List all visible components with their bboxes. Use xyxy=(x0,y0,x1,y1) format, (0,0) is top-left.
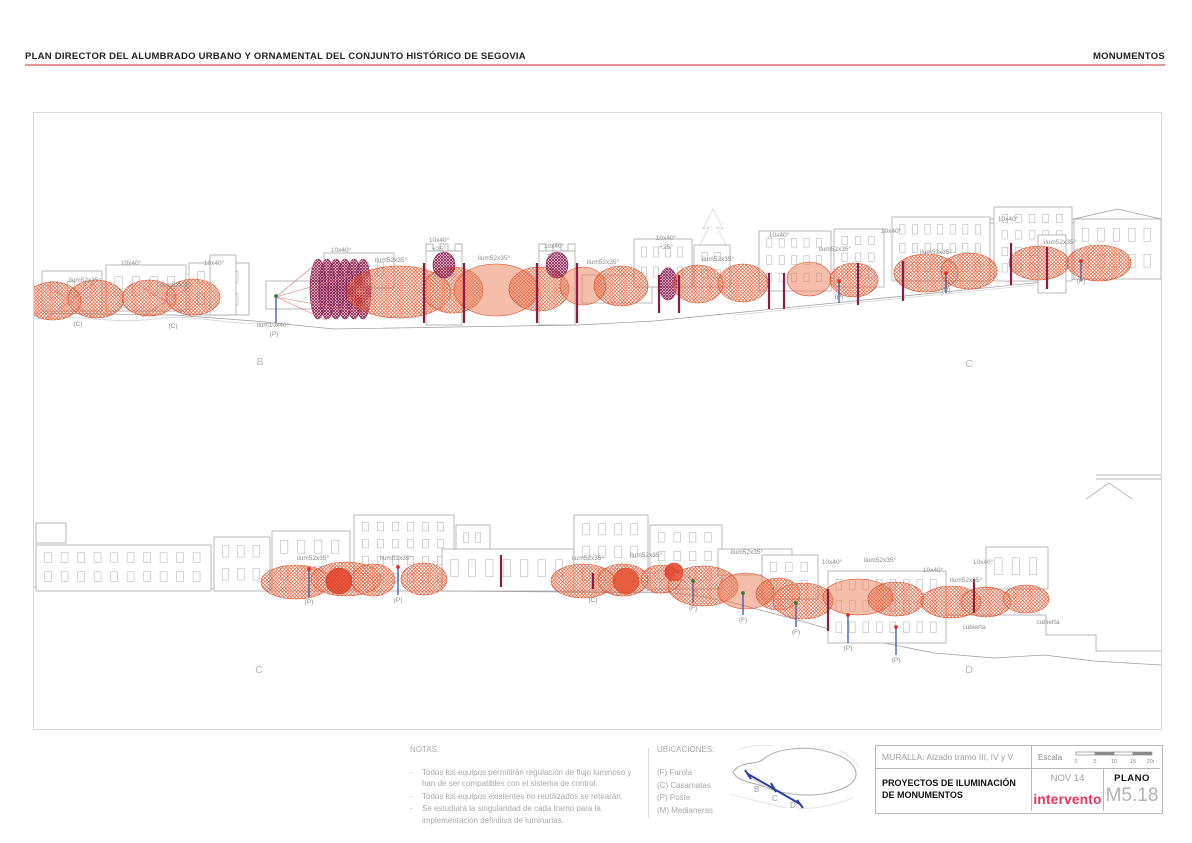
legend-item: (C) Casamatas xyxy=(657,780,714,792)
svg-text:ilum52x35°: ilum52x35° xyxy=(297,554,330,562)
svg-text:cubierta: cubierta xyxy=(962,624,986,631)
svg-text:(F): (F) xyxy=(739,617,747,624)
svg-text:ilum52x35°: ilum52x35° xyxy=(160,281,193,289)
svg-text:10x40°: 10x40° xyxy=(331,246,352,254)
svg-text:ilum52x35°: ilum52x35° xyxy=(864,556,897,564)
header-underline xyxy=(25,64,1165,66)
plano-cell: PLANO M5.18 xyxy=(1104,769,1160,811)
svg-text:5: 5 xyxy=(1093,759,1096,765)
map-label-c: C xyxy=(772,794,778,803)
svg-text:(P): (P) xyxy=(270,331,279,338)
svg-text:(P): (P) xyxy=(892,657,901,664)
drawing-subtitle: MURALLA: Alzado tramo III, IV y V xyxy=(876,746,1032,769)
note-item: - Todos los equipos permitirán regulació… xyxy=(410,767,640,790)
svg-text:(F): (F) xyxy=(792,629,800,636)
svg-text:cubierta: cubierta xyxy=(1036,619,1060,626)
svg-text:+25°: +25° xyxy=(547,251,561,259)
svg-text:10: 10 xyxy=(1111,759,1117,765)
map-label-d: D xyxy=(790,801,796,810)
svg-text:(C): (C) xyxy=(168,323,177,330)
svg-text:(P): (P) xyxy=(942,287,951,294)
title-block: MURALLA: Alzado tramo III, IV y V Escala… xyxy=(875,745,1163,814)
project-title: PROYECTOS DE ILUMINACIÓN DE MONUMENTOS xyxy=(876,769,1032,811)
map-label-b: B xyxy=(754,785,759,794)
scale-bar: 0 5 10 15 20m xyxy=(1068,749,1154,766)
plan-sheet: { "header": { "title": "PLAN DIRECTOR DE… xyxy=(0,0,1192,843)
legend-item: (P) Poste xyxy=(657,792,714,804)
svg-text:10x40°: 10x40° xyxy=(923,566,944,574)
elevation-panel-top: ilum52x35°(C)10x40°ilum52x35°(C)10x40°il… xyxy=(33,112,1162,406)
svg-text:ilum52x35°: ilum52x35° xyxy=(380,554,413,562)
date-logo-cell: NOV 14 intervento xyxy=(1032,769,1104,811)
location-key-map: B C D xyxy=(727,742,863,814)
svg-text:ilum52x35°: ilum52x35° xyxy=(920,248,953,256)
svg-text:10x40°: 10x40° xyxy=(881,227,902,235)
svg-text:(P): (P) xyxy=(305,599,314,606)
svg-text:10x40°: 10x40° xyxy=(544,242,565,250)
svg-text:ilum52x35°: ilum52x35° xyxy=(630,551,663,559)
svg-text:ilum52x35°: ilum52x35° xyxy=(1044,238,1077,246)
svg-text:15: 15 xyxy=(1130,759,1136,765)
intervento-logo: intervento xyxy=(1033,792,1101,807)
svg-text:ilum10x40°: ilum10x40° xyxy=(257,321,290,329)
svg-text:ilum52x35°: ilum52x35° xyxy=(69,276,102,284)
legend-item: (F) Farola xyxy=(657,767,714,779)
svg-text:ilum52x35°: ilum52x35° xyxy=(731,548,764,556)
note-item: - Todos los equipos existentes no reutil… xyxy=(410,791,640,803)
elevation-drawing-top: ilum52x35°(C)10x40°ilum52x35°(C)10x40°il… xyxy=(34,113,1161,405)
svg-text:10x40°: 10x40° xyxy=(822,558,843,566)
notes-block: NOTAS: - Todos los equipos permitirán re… xyxy=(410,744,640,828)
svg-text:10x40°: 10x40° xyxy=(204,259,225,267)
svg-text:20m: 20m xyxy=(1147,759,1154,765)
svg-text:(P): (P) xyxy=(835,294,844,301)
note-item: - Se estudiará la singularidad de cada t… xyxy=(410,803,640,826)
svg-text:10x40°: 10x40° xyxy=(429,236,450,244)
locations-title: UBICACIONES: xyxy=(657,744,714,756)
svg-text:(F): (F) xyxy=(689,605,697,612)
svg-text:ilum52x35°: ilum52x35° xyxy=(819,245,852,253)
svg-text:+25°: +25° xyxy=(659,243,673,251)
svg-text:C: C xyxy=(965,358,973,370)
svg-text:(P): (P) xyxy=(394,597,403,604)
svg-text:ilum52x35°: ilum52x35° xyxy=(375,256,408,264)
svg-text:0: 0 xyxy=(1074,759,1077,765)
svg-text:10x40°: 10x40° xyxy=(998,215,1019,223)
elevation-panel-bottom: ilum52x35°(P)ilum52x35°(P)ilum52x35°(C)i… xyxy=(33,403,1162,730)
svg-text:ilum52x35°: ilum52x35° xyxy=(587,258,620,266)
svg-text:(P): (P) xyxy=(1077,278,1086,285)
plano-label: PLANO xyxy=(1114,773,1150,784)
legend-item: (M) Medianeras xyxy=(657,805,714,817)
svg-text:ilum52x35°: ilum52x35° xyxy=(572,554,605,562)
notes-title: NOTAS: xyxy=(410,744,640,756)
sheet-title: PLAN DIRECTOR DEL ALUMBRADO URBANO Y ORN… xyxy=(25,51,526,62)
svg-text:10x40°: 10x40° xyxy=(769,231,790,239)
date: NOV 14 xyxy=(1051,773,1085,784)
svg-text:+25°: +25° xyxy=(432,245,446,253)
footer-divider xyxy=(648,748,649,818)
svg-text:ilum52x35°: ilum52x35° xyxy=(950,576,983,584)
svg-text:10x40°: 10x40° xyxy=(656,234,677,242)
svg-text:ilum52x35°: ilum52x35° xyxy=(478,254,511,262)
svg-text:B: B xyxy=(256,356,263,368)
sheet-category: MONUMENTOS xyxy=(1093,51,1165,62)
svg-text:10x40°: 10x40° xyxy=(973,558,994,566)
svg-text:C: C xyxy=(255,664,263,676)
locations-legend: UBICACIONES: (F) Farola (C) Casamatas (P… xyxy=(657,744,714,817)
svg-text:(C): (C) xyxy=(588,597,597,604)
scale-label: Escala xyxy=(1038,753,1062,762)
elevation-drawing-bottom: ilum52x35°(P)ilum52x35°(P)ilum52x35°(C)i… xyxy=(34,403,1161,729)
svg-text:ilum52x35°: ilum52x35° xyxy=(702,255,735,263)
svg-text:10x40°: 10x40° xyxy=(121,259,142,267)
scale-cell: Escala 0 5 10 15 20m xyxy=(1032,746,1160,769)
plano-number: M5.18 xyxy=(1106,785,1159,807)
svg-text:(P): (P) xyxy=(844,645,853,652)
svg-text:D: D xyxy=(965,664,973,676)
svg-text:(C): (C) xyxy=(73,321,82,328)
